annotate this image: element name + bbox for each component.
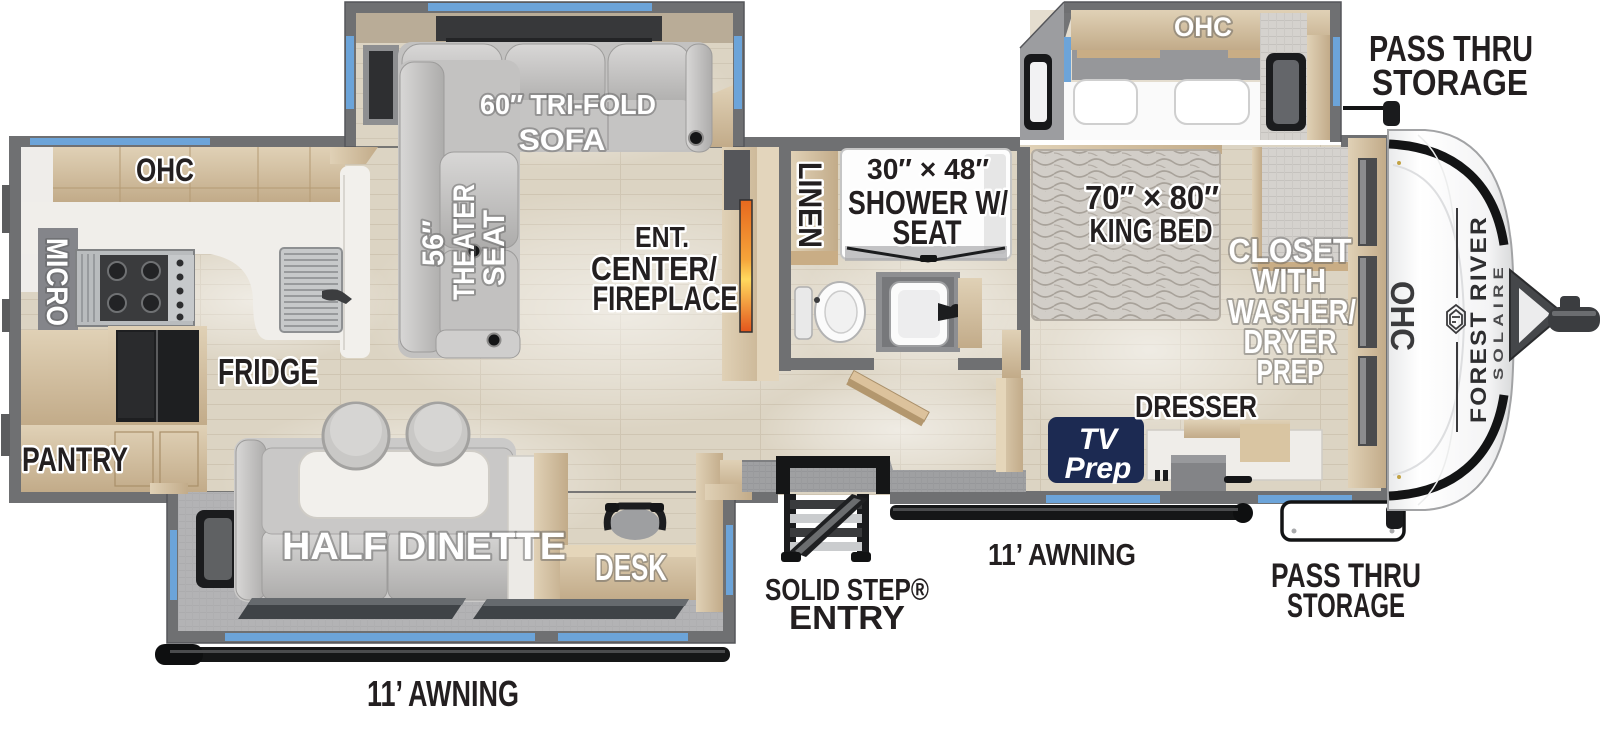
svg-text:SEAT: SEAT: [893, 214, 962, 252]
svg-text:FOREST RIVER: FOREST RIVER: [1466, 215, 1491, 423]
svg-text:Prep: Prep: [1065, 452, 1132, 485]
svg-text:30″ × 48″: 30″ × 48″: [867, 154, 989, 186]
svg-text:11’ AWNING: 11’ AWNING: [988, 537, 1136, 572]
svg-text:MICRO: MICRO: [40, 238, 73, 326]
svg-text:OHC: OHC: [136, 152, 194, 188]
svg-text:56″: 56″: [417, 220, 450, 266]
svg-text:HALF DINETTE: HALF DINETTE: [282, 526, 566, 568]
svg-text:DESK: DESK: [595, 547, 667, 588]
svg-text:OHC: OHC: [1174, 12, 1232, 42]
svg-text:SEAT: SEAT: [478, 210, 511, 286]
svg-text:SOLAIRE: SOLAIRE: [1490, 262, 1506, 380]
svg-text:PANTRY: PANTRY: [22, 441, 128, 479]
svg-text:60″ TRI-FOLD: 60″ TRI-FOLD: [480, 89, 656, 120]
svg-text:SOFA: SOFA: [519, 124, 606, 157]
svg-text:ENTRY: ENTRY: [789, 599, 905, 636]
svg-text:11’ AWNING: 11’ AWNING: [367, 673, 519, 714]
svg-text:PREP: PREP: [1257, 353, 1324, 390]
svg-text:THEATER: THEATER: [448, 184, 481, 300]
svg-text:LINEN: LINEN: [792, 162, 828, 248]
svg-text:FIREPLACE: FIREPLACE: [593, 280, 738, 318]
svg-text:70″ × 80″: 70″ × 80″: [1085, 179, 1219, 216]
svg-text:STORAGE: STORAGE: [1372, 62, 1528, 103]
svg-text:FRIDGE: FRIDGE: [218, 351, 318, 392]
svg-text:OHC: OHC: [1384, 281, 1421, 351]
svg-text:KING BED: KING BED: [1090, 212, 1213, 249]
svg-text:DRESSER: DRESSER: [1135, 389, 1257, 424]
svg-text:STORAGE: STORAGE: [1287, 587, 1405, 625]
